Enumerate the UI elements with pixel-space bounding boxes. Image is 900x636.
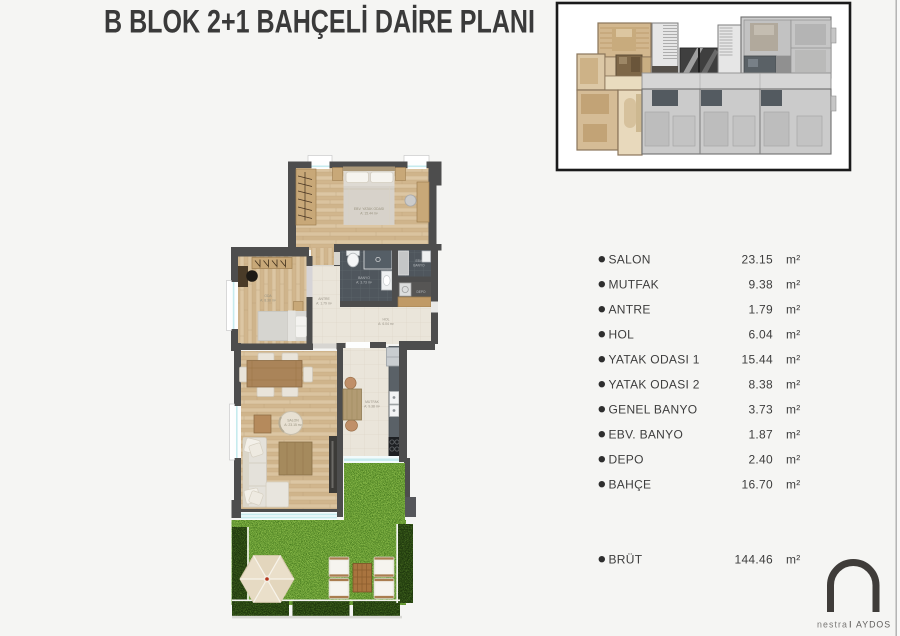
svg-text:ODA: ODA — [264, 294, 272, 298]
svg-text:A: 9.38 m²: A: 9.38 m² — [364, 405, 381, 409]
svg-text:2.40: 2.40 — [748, 452, 773, 466]
svg-text:A: 15.44 m²: A: 15.44 m² — [360, 212, 378, 216]
svg-text:SALON: SALON — [287, 419, 299, 423]
svg-text:DEPO: DEPO — [416, 290, 426, 294]
svg-text:BANYO: BANYO — [413, 264, 425, 268]
svg-text:EBV.: EBV. — [416, 259, 423, 263]
svg-text:A: 3.73 m²: A: 3.73 m² — [356, 281, 373, 285]
svg-text:m²: m² — [786, 477, 801, 491]
svg-text:EBV. BANYO: EBV. BANYO — [609, 427, 684, 441]
svg-text:MUTFAK: MUTFAK — [609, 277, 659, 291]
svg-text:A: 23.15 m²: A: 23.15 m² — [284, 423, 302, 427]
svg-text:m²: m² — [786, 252, 801, 266]
svg-text:YATAK ODASI 2: YATAK ODASI 2 — [609, 377, 700, 391]
svg-text:SALON: SALON — [609, 252, 651, 266]
svg-text:15.44: 15.44 — [741, 352, 773, 366]
svg-text:GENEL BANYO: GENEL BANYO — [609, 402, 698, 416]
svg-text:A: 6.04 m²: A: 6.04 m² — [378, 322, 395, 326]
svg-text:16.70: 16.70 — [741, 477, 773, 491]
svg-text:3.73: 3.73 — [748, 402, 773, 416]
svg-text:8.38: 8.38 — [748, 377, 773, 391]
svg-text:A: 1.79 m²: A: 1.79 m² — [316, 302, 333, 306]
svg-text:AYDOS: AYDOS — [856, 620, 891, 630]
svg-text:m²: m² — [786, 452, 801, 466]
svg-text:BRÜT: BRÜT — [609, 552, 643, 566]
svg-text:m²: m² — [786, 277, 801, 291]
svg-text:m²: m² — [786, 327, 801, 341]
svg-text:A: 8.38 m²: A: 8.38 m² — [260, 299, 277, 303]
svg-text:6.04: 6.04 — [748, 327, 773, 341]
svg-text:BANYO: BANYO — [358, 276, 370, 280]
svg-text:EBV. YATAK ODASI: EBV. YATAK ODASI — [354, 207, 384, 211]
svg-text:m²: m² — [786, 402, 801, 416]
svg-text:B BLOK 2+1 BAHÇELİ DAİRE PLANI: B BLOK 2+1 BAHÇELİ DAİRE PLANI — [104, 4, 535, 40]
svg-text:nestra: nestra — [817, 620, 848, 630]
svg-text:1.79: 1.79 — [748, 302, 773, 316]
svg-text:HOL: HOL — [609, 327, 635, 341]
svg-text:9.38: 9.38 — [748, 277, 773, 291]
svg-text:YATAK ODASI 1: YATAK ODASI 1 — [609, 352, 700, 366]
svg-text:23.15: 23.15 — [741, 252, 773, 266]
svg-text:1.87: 1.87 — [748, 427, 773, 441]
svg-text:ANTRE: ANTRE — [318, 297, 330, 301]
svg-text:MUTFAK: MUTFAK — [365, 400, 379, 404]
svg-text:144.46: 144.46 — [734, 552, 773, 566]
svg-text:m²: m² — [786, 302, 801, 316]
svg-text:HOL: HOL — [383, 318, 390, 322]
svg-text:DEPO: DEPO — [609, 452, 644, 466]
svg-text:m²: m² — [786, 427, 801, 441]
svg-text:BAHÇE: BAHÇE — [609, 477, 652, 491]
svg-text:m²: m² — [786, 352, 801, 366]
svg-text:m²: m² — [786, 552, 801, 566]
svg-text:I: I — [849, 620, 852, 630]
svg-text:m²: m² — [786, 377, 801, 391]
svg-text:ANTRE: ANTRE — [609, 302, 651, 316]
